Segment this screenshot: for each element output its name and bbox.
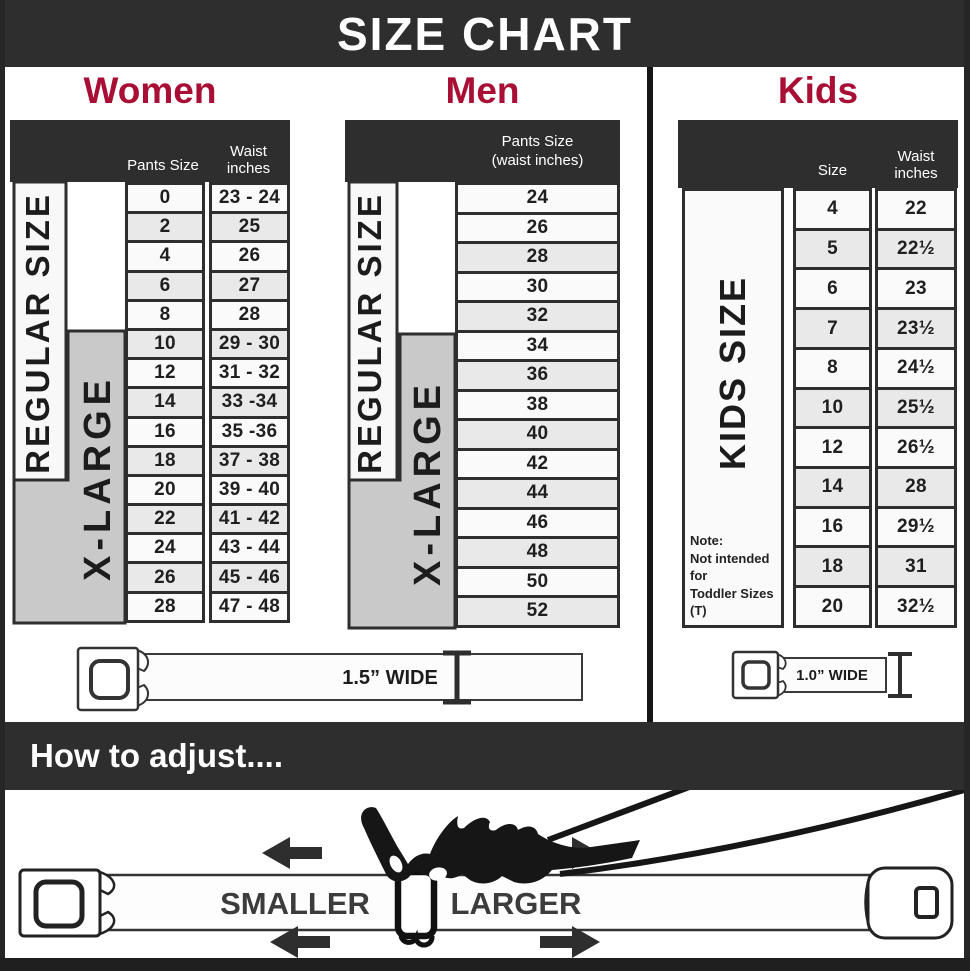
pants-size-cell: 26	[125, 561, 205, 593]
table-row: 24	[455, 182, 620, 215]
women-waist-header: Waist inches	[207, 120, 290, 182]
pants-size-cell: 26	[455, 212, 620, 245]
table-row: 1231 - 32	[125, 357, 290, 389]
men-section-title: Men	[345, 70, 620, 112]
size-cell: 5	[793, 228, 872, 271]
table-row: 2241 - 42	[125, 503, 290, 535]
table-row: 44	[455, 477, 620, 510]
table-row: 46	[455, 507, 620, 540]
waist-cell: 23½	[875, 307, 957, 350]
size-cell: 16	[793, 506, 872, 549]
table-row: 2443 - 44	[125, 532, 290, 564]
table-row: 48	[455, 536, 620, 569]
pants-size-cell: 12	[125, 357, 205, 389]
men-xlarge-label: X-LARGE	[407, 380, 449, 586]
waist-cell: 47 - 48	[209, 591, 290, 623]
kids-waist-header: Waist inches	[875, 120, 957, 188]
kids-size-header: Size	[793, 120, 872, 188]
table-row: 2032½	[793, 585, 957, 628]
belt-tongue-icon	[866, 868, 953, 938]
pants-size-cell: 42	[455, 448, 620, 481]
size-cell: 6	[793, 267, 872, 310]
seatbelt-buckle-icon	[78, 648, 148, 710]
women-table-header: Pants Size Waist inches	[10, 120, 290, 182]
frame-right-border	[964, 0, 970, 971]
size-cell: 8	[793, 347, 872, 390]
table-row: 023 - 24	[125, 182, 290, 214]
how-to-adjust-title: How to adjust....	[30, 737, 283, 775]
adult-belt-graphic: 1.5” WIDE	[60, 640, 600, 720]
table-row: 34	[455, 330, 620, 363]
pants-size-cell: 14	[125, 386, 205, 418]
waist-cell: 26½	[875, 426, 957, 469]
pants-size-cell: 20	[125, 474, 205, 506]
frame-left-border	[0, 0, 5, 971]
table-row: 38	[455, 389, 620, 422]
table-row: 1428	[793, 466, 957, 509]
women-size-table: 023 - 24 225 426 627 828 1029 - 30 1231 …	[125, 182, 290, 623]
waist-cell: 37 - 38	[209, 445, 290, 477]
table-row: 1837 - 38	[125, 445, 290, 477]
waist-cell: 41 - 42	[209, 503, 290, 535]
waist-cell: 33 -34	[209, 386, 290, 418]
header-spacer	[345, 120, 455, 182]
waist-cell: 29½	[875, 506, 957, 549]
table-row: 30	[455, 271, 620, 304]
arrow-left-icon	[262, 837, 322, 869]
waist-cell: 32½	[875, 585, 957, 628]
table-row: 36	[455, 359, 620, 392]
pants-size-cell: 44	[455, 477, 620, 510]
waist-cell: 43 - 44	[209, 532, 290, 564]
slider-adjuster-icon	[398, 872, 434, 945]
table-row: 1433 -34	[125, 386, 290, 418]
how-to-adjust-banner: How to adjust....	[0, 722, 970, 790]
table-row: 422	[793, 188, 957, 231]
table-row: 50	[455, 566, 620, 599]
waist-cell: 31	[875, 545, 957, 588]
table-row: 828	[125, 299, 290, 331]
pants-size-cell: 52	[455, 595, 620, 628]
table-row: 42	[455, 448, 620, 481]
table-row: 1629½	[793, 506, 957, 549]
waist-cell: 22	[875, 188, 957, 231]
smaller-label: SMALLER	[220, 886, 370, 921]
size-cell: 4	[793, 188, 872, 231]
frame-bottom-border	[0, 958, 970, 971]
women-pants-size-header: Pants Size	[123, 120, 203, 182]
pants-size-cell: 24	[125, 532, 205, 564]
page-title: SIZE CHART	[337, 7, 633, 61]
table-row: 40	[455, 418, 620, 451]
kids-size-label: KIDS SIZE	[712, 276, 754, 470]
table-row: 2645 - 46	[125, 561, 290, 593]
pants-size-cell: 50	[455, 566, 620, 599]
pants-size-cell: 4	[125, 240, 205, 272]
belt-width-label: 1.0” WIDE	[796, 667, 868, 684]
kids-belt-graphic: 1.0” WIDE	[720, 645, 935, 703]
title-banner: SIZE CHART	[0, 0, 970, 67]
pants-size-cell: 0	[125, 182, 205, 214]
size-cell: 18	[793, 545, 872, 588]
size-cell: 12	[793, 426, 872, 469]
size-cell: 7	[793, 307, 872, 350]
women-section-title: Women	[8, 70, 292, 112]
men-table-header: Pants Size (waist inches)	[345, 120, 620, 182]
pants-size-cell: 6	[125, 270, 205, 302]
pants-size-cell: 38	[455, 389, 620, 422]
pants-size-cell: 34	[455, 330, 620, 363]
pants-size-cell: 10	[125, 328, 205, 360]
table-row: 426	[125, 240, 290, 272]
waist-cell: 27	[209, 270, 290, 302]
table-row: 26	[455, 212, 620, 245]
header-spacer	[678, 120, 793, 188]
table-row: 28	[455, 241, 620, 274]
seatbelt-buckle-icon	[20, 870, 114, 936]
waist-cell: 23	[875, 267, 957, 310]
table-row: 2847 - 48	[125, 591, 290, 623]
women-xlarge-label: X-LARGE	[77, 375, 119, 581]
pants-size-cell: 24	[455, 182, 620, 215]
pants-size-cell: 30	[455, 271, 620, 304]
women-size-range-labels: REGULAR SIZE X-LARGE	[10, 178, 130, 628]
table-row: 522½	[793, 228, 957, 271]
pants-size-cell: 28	[125, 591, 205, 623]
waist-cell: 28	[875, 466, 957, 509]
men-size-table: 24 26 28 30 32 34 36 38 40 42 44 46 48 5…	[455, 182, 620, 628]
men-pants-size-header: Pants Size (waist inches)	[455, 120, 620, 182]
belt-width-label: 1.5” WIDE	[342, 667, 438, 689]
pants-size-cell: 46	[455, 507, 620, 540]
table-row: 1226½	[793, 426, 957, 469]
women-regular-size-label: REGULAR SIZE	[19, 192, 56, 474]
waist-cell: 26	[209, 240, 290, 272]
table-row: 627	[125, 270, 290, 302]
table-row: 824½	[793, 347, 957, 390]
kids-size-table: 422 522½ 623 723½ 824½ 1025½ 1226½ 1428 …	[793, 188, 957, 628]
waist-cell: 23 - 24	[209, 182, 290, 214]
waist-cell: 25½	[875, 387, 957, 430]
table-row: 1029 - 30	[125, 328, 290, 360]
kids-size-label-box: KIDS SIZE Note: Not intended for Toddler…	[682, 188, 784, 628]
table-row: 52	[455, 595, 620, 628]
table-row: 225	[125, 211, 290, 243]
pants-size-cell: 48	[455, 536, 620, 569]
waist-cell: 45 - 46	[209, 561, 290, 593]
pants-size-cell: 32	[455, 300, 620, 333]
adjust-diagram: SMALLER LARGER	[0, 790, 970, 960]
table-row: 723½	[793, 307, 957, 350]
size-chart-infographic: SIZE CHART Women Pants Size Waist inches…	[0, 0, 970, 971]
waist-cell: 24½	[875, 347, 957, 390]
header-spacer	[10, 120, 123, 182]
table-row: 32	[455, 300, 620, 333]
pants-size-cell: 22	[125, 503, 205, 535]
table-row: 1831	[793, 545, 957, 588]
table-row: 623	[793, 267, 957, 310]
pants-size-cell: 36	[455, 359, 620, 392]
men-size-range-labels: REGULAR SIZE X-LARGE	[345, 178, 460, 633]
pants-size-cell: 8	[125, 299, 205, 331]
table-row: 1635 -36	[125, 416, 290, 448]
size-cell: 20	[793, 585, 872, 628]
kids-section-title: Kids	[678, 70, 958, 112]
table-row: 2039 - 40	[125, 474, 290, 506]
kids-table-header: Size Waist inches	[678, 120, 958, 188]
pants-size-cell: 16	[125, 416, 205, 448]
waist-cell: 39 - 40	[209, 474, 290, 506]
seatbelt-buckle-icon	[733, 652, 786, 698]
pants-size-cell: 18	[125, 445, 205, 477]
kids-note: Note: Not intended for Toddler Sizes (T)	[690, 532, 781, 620]
size-cell: 14	[793, 466, 872, 509]
size-cell: 10	[793, 387, 872, 430]
pants-size-cell: 2	[125, 211, 205, 243]
waist-cell: 25	[209, 211, 290, 243]
waist-cell: 35 -36	[209, 416, 290, 448]
column-divider	[647, 67, 653, 722]
men-regular-size-label: REGULAR SIZE	[351, 192, 388, 474]
width-marker-icon	[888, 654, 912, 696]
table-row: 1025½	[793, 387, 957, 430]
waist-cell: 29 - 30	[209, 328, 290, 360]
waist-cell: 31 - 32	[209, 357, 290, 389]
waist-cell: 28	[209, 299, 290, 331]
waist-cell: 22½	[875, 228, 957, 271]
pants-size-cell: 28	[455, 241, 620, 274]
pants-size-cell: 40	[455, 418, 620, 451]
larger-label: LARGER	[451, 886, 582, 921]
